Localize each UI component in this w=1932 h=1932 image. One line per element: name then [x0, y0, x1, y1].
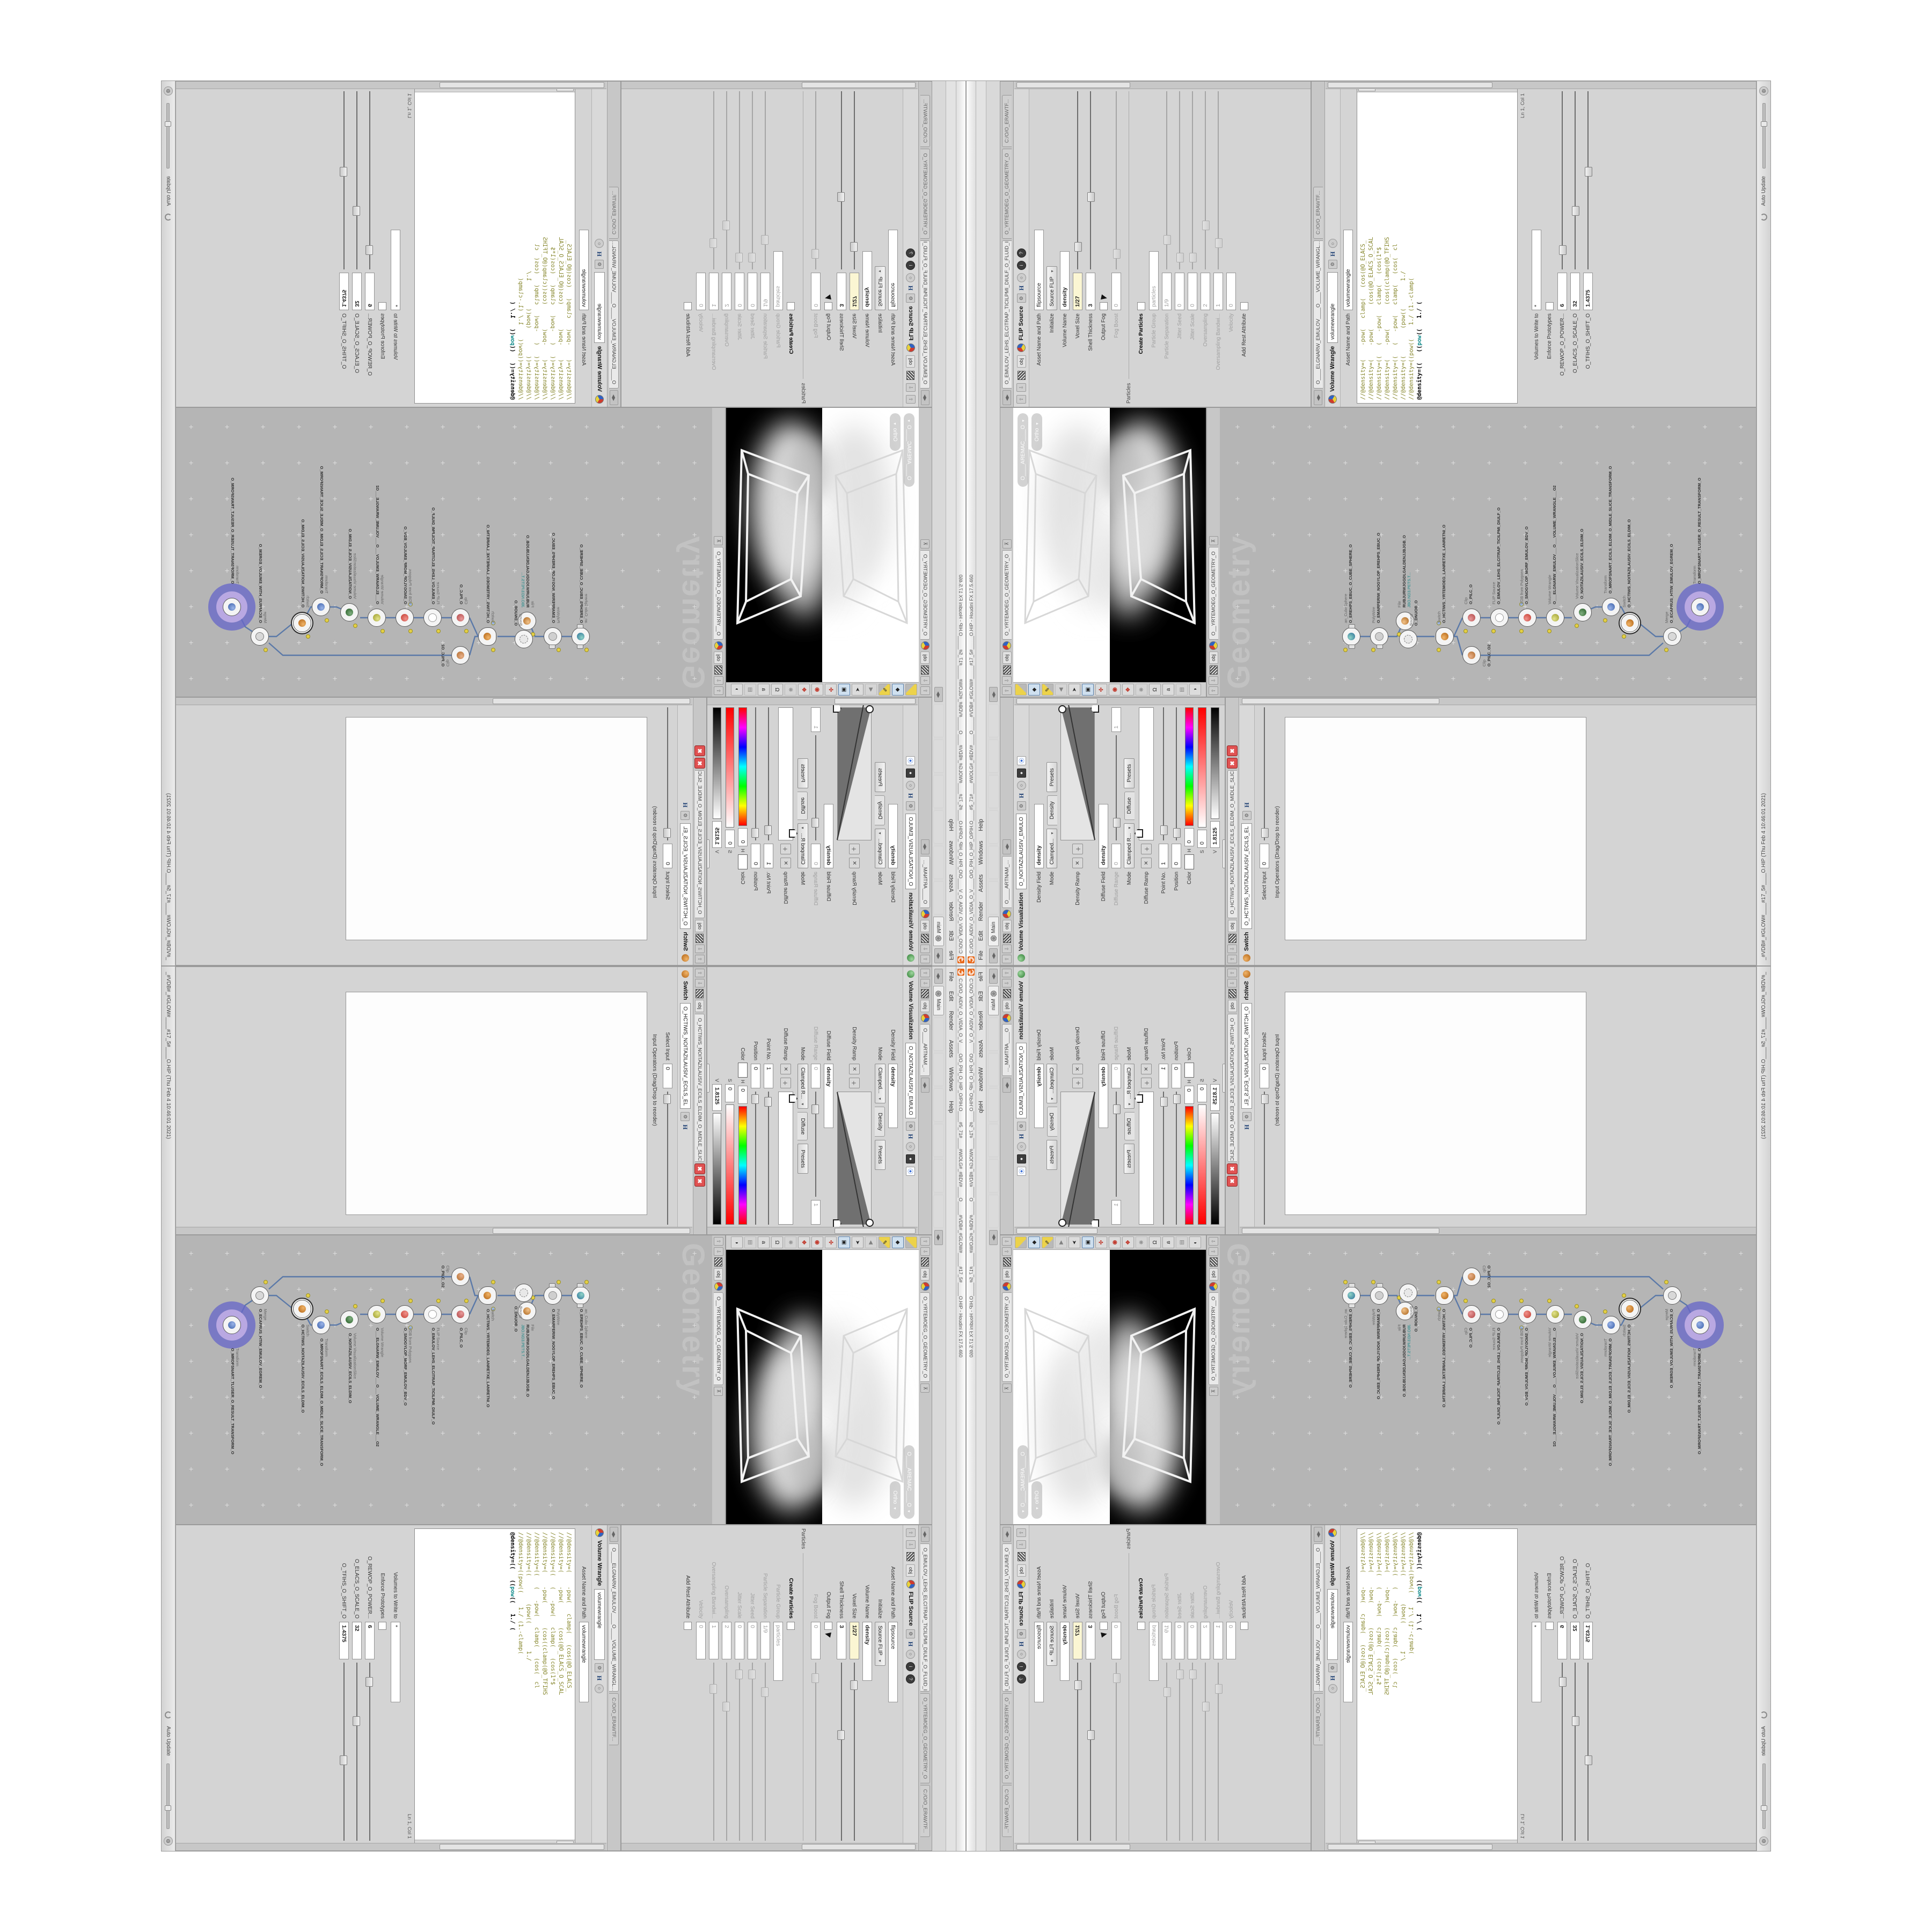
density-field-value[interactable]: density — [888, 1064, 898, 1128]
volumes-to-write-value[interactable]: * — [391, 1622, 400, 1702]
fog-boost-slider[interactable] — [811, 1663, 821, 1841]
update-mode-icon[interactable] — [165, 1711, 172, 1718]
measure-icon[interactable]: a — [758, 684, 770, 696]
select-input-value[interactable]: 0 — [663, 844, 672, 868]
geometry-pane-tab[interactable]: O_YRTEMOEG_O_GEOMETRY_O — [920, 149, 930, 239]
breadcrumb-obj[interactable]: obj — [921, 1268, 930, 1280]
diffuse-range-slider[interactable] — [811, 735, 821, 840]
pose-tool-icon[interactable]: ✣ — [1095, 684, 1107, 696]
saturation-slider[interactable] — [1198, 1104, 1206, 1225]
pin-icon[interactable]: ⊼ — [921, 539, 930, 548]
node-switch-visualization[interactable]: SwitchO_HCTIWS_NOITAZILAUSIV_ECILS_ELDIM… — [293, 1300, 311, 1318]
gear-icon[interactable]: ⚙ — [906, 1629, 916, 1638]
pane-up-arrow-icon[interactable]: ⇧ — [920, 686, 930, 695]
create-particles-checkbox[interactable] — [787, 1622, 795, 1630]
ramp-position-marker[interactable] — [789, 1094, 797, 1103]
magnifier-icon[interactable]: ○ — [1017, 1142, 1026, 1151]
node-transform-slice[interactable]: TransformO_MROFSNART_ECILS_ELDIM_O_MIDLE… — [1602, 1316, 1620, 1334]
viewport-canvas[interactable]: O____AREMAC____O Ortho — [1013, 408, 1206, 682]
select-input-slider[interactable] — [1260, 1092, 1269, 1225]
oversampling-value[interactable]: 2 — [722, 273, 731, 310]
ramp-add-button[interactable]: ＋ — [780, 1078, 791, 1088]
error-icon[interactable]: ✖ — [1227, 758, 1238, 769]
scale-param-slider[interactable] — [1570, 91, 1580, 269]
network-pane-tab[interactable]: O__YRTEMOEG_O_GEOMETRY_O — [1209, 547, 1218, 640]
breadcrumb-obj[interactable]: obj — [906, 1564, 916, 1577]
pane-up-arrow-icon[interactable]: ⇧ — [1002, 1237, 1012, 1246]
flip-node-name-field[interactable]: flipsource — [1034, 1622, 1044, 1702]
particle-separation-slider[interactable] — [760, 91, 770, 269]
pane-down-arrow-icon[interactable]: ⇩ — [1016, 383, 1026, 392]
val-value[interactable]: 1.8125 — [712, 821, 722, 848]
pin-icon[interactable]: ⊼ — [921, 1384, 930, 1393]
node-volume-visualization-slice[interactable]: Volume VisualizationSliceO_NOITAZILAUSIV… — [1574, 603, 1592, 621]
density-field-value[interactable]: density — [888, 804, 898, 868]
network-canvas[interactable]: ++++++++++++++++++++++++++++++++++++++++… — [176, 1235, 712, 1524]
value-slider[interactable] — [1211, 1113, 1219, 1225]
position-value[interactable]: 0 — [751, 844, 760, 868]
shell-thickness-slider[interactable] — [837, 91, 846, 269]
node-merge[interactable]: MergeO_ECAFRUS_HTIW_EMULOV_EGREM_O — [251, 1286, 269, 1305]
pane-up-arrow-icon[interactable]: ⇧ — [1209, 686, 1218, 695]
viz-pane-tab[interactable]: O____ARTNAM_... — [920, 856, 930, 909]
node-volume-visualization-slice[interactable]: Volume VisualizationSliceO_NOITAZILAUSIV… — [340, 1311, 358, 1329]
oversampling-slider[interactable] — [1201, 91, 1210, 269]
pin-icon[interactable]: ⊼ — [714, 1387, 723, 1396]
velocity-value[interactable]: 0 — [1226, 273, 1236, 310]
scale-param-slider[interactable] — [352, 1663, 362, 1841]
error-icon[interactable]: ✖ — [1227, 745, 1238, 756]
viewport-pane-tab[interactable]: O_YRTEMOEG_O_GEOMETRY_O — [920, 550, 930, 640]
flip-scrollbar[interactable] — [621, 1843, 918, 1850]
transform-tool-icon[interactable]: ✥ — [1122, 684, 1134, 696]
camera-pill[interactable]: O____AREMAC____O — [1018, 1445, 1028, 1519]
info-icon[interactable]: i — [1017, 261, 1026, 270]
gear-icon[interactable]: ⚙ — [1328, 1663, 1337, 1672]
geometry-pane-tab[interactable]: O_YRTEMOEG_O_GEOMETRY_O — [1002, 1693, 1012, 1783]
point-no-value[interactable]: 1 — [1159, 844, 1168, 868]
sculpt-tool-icon[interactable]: ◉ — [1109, 684, 1121, 696]
menu-help[interactable]: Help — [948, 819, 954, 831]
particle-group-value[interactable]: particles — [773, 251, 783, 310]
diffuse-range-max[interactable]: 1 — [1111, 1200, 1121, 1225]
jitter-scale-value[interactable]: 0 — [1188, 1622, 1197, 1659]
oversampling-bandwidth-value[interactable]: 1 — [709, 273, 719, 310]
node-clip-b[interactable]: ClipO_PILC_O2 — [451, 1268, 470, 1286]
error-icon[interactable]: ✖ — [694, 1176, 705, 1187]
ramp-point-marker[interactable] — [1058, 705, 1066, 713]
shell-thickness-slider[interactable] — [837, 1663, 846, 1841]
shelf-scroll-left-icon[interactable]: ◀▶ — [934, 948, 943, 963]
menu-help[interactable]: Help — [978, 1101, 984, 1113]
select-tool-icon[interactable]: ◆ — [892, 684, 904, 696]
select-input-value[interactable]: 0 — [1260, 844, 1269, 868]
shelf-tab-main[interactable]: Main — [933, 917, 944, 946]
ramp-delete-button[interactable]: ✕ — [849, 858, 860, 868]
pin-icon[interactable]: ⊼ — [714, 536, 723, 545]
pane-down-arrow-icon[interactable]: ⇩ — [1002, 945, 1012, 953]
vex-code-editor[interactable]: //@density=( -pow( clamp( (cos(@O_ELACS_… — [414, 85, 575, 404]
magnifier-icon[interactable]: ○ — [595, 1684, 604, 1693]
node-switch-visualization[interactable]: SwitchO_HCTIWS_NOITAZILAUSIV_ECILS_ELDIM… — [293, 614, 311, 632]
density-ramp-widget[interactable] — [1060, 707, 1095, 840]
select-input-slider[interactable] — [663, 1092, 672, 1225]
pane-down-arrow-icon[interactable]: ⇩ — [1227, 945, 1237, 953]
menu-assets[interactable]: Assets — [948, 874, 954, 892]
back-arrow-icon[interactable]: ◀ — [1055, 1236, 1067, 1248]
color-swatch[interactable] — [738, 1063, 748, 1078]
scale-param-slider[interactable] — [1570, 1663, 1580, 1841]
houdini-help-icon[interactable]: H — [1243, 802, 1251, 807]
initialize-dropdown[interactable]: Source FLIP — [1046, 266, 1057, 310]
add-rest-attribute-checkbox[interactable] — [1240, 302, 1248, 310]
breadcrumb-obj[interactable]: obj — [1228, 1000, 1237, 1012]
jitter-scale-slider[interactable] — [1188, 1663, 1197, 1841]
hue-slider[interactable] — [738, 1106, 747, 1225]
oversampling-bandwidth-value[interactable]: 1 — [1213, 1622, 1223, 1659]
menu-windows[interactable]: Windows — [948, 1067, 954, 1092]
wrangle-scrollbar[interactable] — [176, 82, 606, 89]
update-mode-icon[interactable] — [165, 214, 172, 221]
create-particles-checkbox[interactable] — [1137, 302, 1145, 310]
particle-separation-value[interactable]: 1/9 — [1162, 1622, 1172, 1659]
val-value[interactable]: 1.8125 — [1210, 821, 1220, 848]
voxel-size-value[interactable]: 1/27 — [1073, 273, 1082, 310]
book-icon[interactable]: ▤ — [1176, 684, 1188, 696]
saturation-slider[interactable] — [726, 1104, 734, 1225]
auto-update-label[interactable]: Auto Update — [1761, 1726, 1767, 1756]
node-volume-visualization-slice[interactable]: Volume VisualizationSliceO_NOITAZILAUSIV… — [340, 603, 358, 621]
gear-icon[interactable]: ⚙ — [1242, 1112, 1252, 1121]
node-cube-sphere[interactable]: an_CubeSphereO_EREHPS_EBUC_O_CUBE_SPHERE… — [1342, 627, 1360, 646]
gear-icon[interactable]: ⚙ — [1242, 811, 1252, 820]
pane-up-arrow-icon[interactable]: ⇧ — [714, 686, 723, 695]
particle-separation-value[interactable]: 1/9 — [760, 273, 770, 310]
wrangle-pane-tab[interactable]: O____ELGNARW_EMULOV____O____VOLUME_WRANG… — [609, 1543, 619, 1692]
node-transform-slice[interactable]: TransformO_MROFSNART_ECILS_ELDIM_O_MIDLE… — [312, 1316, 330, 1334]
measure-icon[interactable]: a — [1162, 684, 1174, 696]
auto-update-label[interactable]: Auto Update — [165, 176, 171, 206]
value-slider[interactable] — [1211, 707, 1219, 819]
diffuse-presets-button[interactable]: Presets — [797, 1144, 808, 1174]
diffuse-range-slider[interactable] — [1111, 1092, 1121, 1197]
volumes-to-write-value[interactable]: * — [391, 230, 400, 310]
jitter-scale-value[interactable]: 0 — [735, 1622, 744, 1659]
shelf-scroll-left-icon[interactable]: ◀▶ — [934, 969, 943, 984]
viewport-canvas[interactable]: O____AREMAC____O Ortho — [726, 1250, 919, 1524]
particle-group-value[interactable]: particles — [773, 1622, 783, 1681]
measure-icon[interactable]: a — [1162, 1236, 1174, 1248]
help-icon[interactable]: ? — [1017, 248, 1026, 258]
shade-sphere-icon[interactable]: ◑ — [1189, 684, 1201, 696]
scale-param-value[interactable]: 32 — [352, 273, 362, 310]
switch-scrollbar[interactable] — [1240, 698, 1756, 705]
houdini-help-icon[interactable]: H — [596, 1675, 604, 1680]
pane-down-arrow-icon[interactable]: ⇩ — [714, 676, 723, 685]
scale-param-value[interactable]: 32 — [352, 1622, 362, 1659]
error-icon[interactable]: ✖ — [694, 758, 705, 769]
ortho-pill[interactable]: Ortho — [890, 413, 901, 451]
network-pane-tab[interactable]: O__YRTEMOEG_O_GEOMETRY_O — [714, 1292, 723, 1385]
gear-icon[interactable]: ⚙ — [1328, 260, 1337, 269]
magnifier-icon[interactable]: ○ — [906, 781, 916, 790]
point-no-slider[interactable] — [764, 707, 773, 840]
diffuse-range-max[interactable]: 1 — [811, 1200, 821, 1225]
breadcrumb-obj[interactable]: obj — [1002, 1268, 1012, 1280]
density-ramp-widget[interactable] — [1060, 1092, 1095, 1225]
hue-value[interactable]: 0 — [1184, 829, 1194, 847]
vex-code-editor[interactable]: //@density=( -pow( clamp( (cos(@O_ELACS_… — [1357, 1528, 1518, 1847]
pin-icon[interactable]: ⊼ — [1209, 536, 1218, 545]
help-icon[interactable]: ? — [906, 248, 916, 258]
pane-down-arrow-icon[interactable]: ⇩ — [920, 945, 930, 953]
shift-param-value[interactable]: 1.4375 — [339, 1622, 349, 1659]
oversampling-bandwidth-value[interactable]: 1 — [1213, 273, 1223, 310]
pane-down-arrow-icon[interactable]: ⇩ — [1209, 676, 1218, 685]
volume-name-value[interactable]: density — [862, 1622, 872, 1681]
menu-windows[interactable]: Windows — [948, 841, 954, 865]
val-value[interactable]: 1.8125 — [1210, 1084, 1220, 1111]
node-transform-slice[interactable]: TransformO_MROFSNART_ECILS_ELDIM_O_MIDLE… — [312, 598, 330, 616]
node-switch-geometry[interactable]: SwitchO_HCTIWS_YRTEMOEG_LANRETXE_LANRETN… — [478, 627, 496, 646]
density-presets-button[interactable]: Presets — [1046, 1140, 1057, 1170]
snap-magnet-icon[interactable]: Ω — [1149, 1236, 1161, 1248]
node-clip-a[interactable]: ClipO_PILC_O — [451, 609, 470, 627]
path-tab[interactable]: C:/O/O_ERAWTF... — [609, 1693, 619, 1745]
move-tool-icon[interactable]: ✎ — [1042, 1236, 1053, 1248]
houdini-help-icon[interactable]: H — [1243, 1124, 1251, 1129]
pane-up-arrow-icon[interactable]: ⇧ — [920, 1237, 930, 1246]
menu-assets[interactable]: Assets — [948, 1040, 954, 1058]
breadcrumb-obj[interactable]: obj — [906, 355, 916, 368]
power-param-slider[interactable] — [365, 1663, 375, 1841]
menu-edit[interactable]: Edit — [948, 931, 954, 941]
switch-pane-tab[interactable]: O_HCTIWS_NOITAZILAUSIV_ECILS_ELDIM_O_MID… — [695, 770, 705, 918]
shift-param-slider[interactable] — [339, 91, 349, 269]
diffuse-folder-tab[interactable]: Diffuse — [798, 1112, 808, 1140]
camera-icon[interactable]: ● — [1017, 1154, 1026, 1163]
viewport-pane-tab[interactable]: O_YRTEMOEG_O_GEOMETRY_O — [1002, 550, 1012, 640]
diffuse-range-min[interactable]: 0 — [1111, 1064, 1121, 1088]
oversampling-slider[interactable] — [722, 1663, 731, 1841]
ramp-delete-button[interactable]: ✕ — [1072, 1064, 1083, 1074]
pane-down-arrow-icon[interactable]: ⇩ — [920, 676, 930, 685]
select-tool-icon[interactable]: ◆ — [1028, 1236, 1040, 1248]
wrangle-node-name-field[interactable]: volumewrangle — [594, 272, 605, 343]
book-icon[interactable]: ▤ — [744, 1236, 756, 1248]
fog-boost-value[interactable]: 0 — [1111, 273, 1121, 310]
pose-tool-icon[interactable]: ✣ — [825, 1236, 837, 1248]
camera-icon[interactable]: ● — [1017, 769, 1026, 778]
viewport-canvas[interactable]: O____AREMAC____O Ortho — [726, 408, 919, 682]
power-param-value[interactable]: 6 — [1557, 273, 1567, 310]
interpolation-dropdown[interactable]: Linear — [707, 1064, 709, 1093]
enforce-prototypes-checkbox[interactable] — [379, 1622, 387, 1630]
breadcrumb-obj[interactable]: obj — [1209, 1268, 1218, 1280]
output-fog-checkbox[interactable] — [825, 302, 833, 310]
path-tab[interactable]: C:/O/O_ERAWTF... — [1313, 187, 1323, 239]
node-merge[interactable]: MergeO_ECAFRUS_HTIW_EMULOV_EGREM_O — [1663, 627, 1681, 646]
viz-node-name-field[interactable]: O_NOITAZILAUSIV_EMULO — [1016, 1043, 1027, 1118]
camera-lens-icon[interactable]: ▣ — [1082, 1236, 1094, 1248]
enforce-prototypes-checkbox[interactable] — [1546, 1622, 1554, 1630]
initialize-dropdown[interactable]: Source FLIP — [1046, 1622, 1057, 1666]
flip-pane-tab[interactable]: O_EMULOV_LEHS_ELCITRAP_TICILPMI_DIULF_O_… — [1002, 1543, 1012, 1692]
viz-node-name-field[interactable]: O_NOITAZILAUSIV_EMULO — [1016, 814, 1027, 889]
viz-scrollbar[interactable] — [1014, 698, 1225, 705]
wrangle-name-value[interactable]: volumewrangle — [579, 230, 589, 310]
input-operators-list[interactable] — [1285, 992, 1586, 1215]
ramp-add-button[interactable]: ＋ — [1141, 844, 1152, 854]
diffuse-folder-tab[interactable]: Diffuse — [1124, 792, 1135, 820]
flip-scrollbar[interactable] — [1014, 82, 1311, 89]
pane-down-arrow-icon[interactable]: ⇩ — [695, 979, 705, 987]
point-no-value[interactable]: 1 — [1159, 1064, 1168, 1088]
density-mode-dropdown[interactable]: Clamped... — [875, 829, 885, 868]
density-presets-button[interactable]: Presets — [1046, 762, 1057, 792]
magnifier-icon[interactable]: ○ — [1017, 273, 1026, 282]
pin-icon[interactable]: ⊼ — [1002, 539, 1012, 548]
viz-pane-tab[interactable]: O____ARTNAM_... — [920, 1024, 930, 1077]
hue-slider[interactable] — [738, 707, 747, 826]
density-mode-dropdown[interactable]: Clamped... — [875, 1064, 885, 1103]
shell-thickness-slider[interactable] — [1086, 1663, 1095, 1841]
wrangle-node-name-field[interactable]: volumewrangle — [1327, 272, 1338, 343]
val-value[interactable]: 1.8125 — [712, 1084, 722, 1111]
node-switch-visualization[interactable]: SwitchO_HCTIWS_NOITAZILAUSIV_ECILS_ELDIM… — [1621, 614, 1639, 632]
density-ramp-widget[interactable] — [837, 1092, 872, 1225]
node-cube-sphere[interactable]: an_CubeSphereO_EREHPS_EBUC_O_CUBE_SPHERE… — [572, 627, 590, 646]
viz-node-name-field[interactable]: O_NOITAZILAUSIV_EMULO — [905, 1043, 916, 1118]
diffuse-range-slider[interactable] — [811, 1092, 821, 1197]
scale-param-slider[interactable] — [352, 91, 362, 269]
sculpt-tool-icon[interactable]: ◉ — [811, 1236, 823, 1248]
node-volume-visualization-slice[interactable]: Volume VisualizationSliceO_NOITAZILAUSIV… — [1574, 1311, 1592, 1329]
info-icon[interactable]: i — [906, 1662, 916, 1671]
flip-scrollbar[interactable] — [621, 82, 918, 89]
ramp-point-marker[interactable] — [1058, 1219, 1066, 1227]
shift-param-value[interactable]: 1.4375 — [339, 273, 349, 310]
diffuse-folder-tab[interactable]: Diffuse — [1124, 1112, 1135, 1140]
snap-magnet-icon[interactable]: Ω — [1149, 684, 1161, 696]
update-mode-icon[interactable] — [1760, 214, 1767, 221]
transform-tool-icon[interactable]: ✥ — [798, 684, 810, 696]
shelf-tab-main[interactable]: Main — [988, 917, 999, 946]
velocity-value[interactable]: 0 — [696, 273, 706, 310]
hue-value[interactable]: 0 — [1184, 1086, 1194, 1104]
power-param-value[interactable]: 6 — [365, 273, 375, 310]
node-result-transform-selected[interactable]: TransformO_MROFSNART_TLUSER_O_RESULT_TRA… — [223, 598, 241, 616]
network-canvas[interactable]: ++++++++++++++++++++++++++++++++++++++++… — [176, 408, 712, 697]
shade-sphere-icon[interactable]: ◑ — [731, 1236, 743, 1248]
select-input-value[interactable]: 0 — [663, 1064, 672, 1088]
diffuse-presets-button[interactable]: Presets — [797, 758, 808, 788]
gear-icon[interactable]: ⚙ — [1017, 1122, 1026, 1131]
breadcrumb-obj[interactable]: obj — [1017, 1564, 1026, 1577]
breadcrumb-obj[interactable]: obj — [1002, 920, 1012, 932]
node-bound[interactable]: BoundO_DNUOB_O — [1399, 630, 1417, 648]
node-switch-geometry[interactable]: SwitchO_HCTIWS_YRTEMOEG_LANRETXE_LANRETN… — [478, 1286, 496, 1305]
switch-pane-tab[interactable]: O_HCTIWS_NOITAZILAUSIV_ECILS_ELDIM_O_MID… — [695, 1014, 705, 1162]
move-tool-icon[interactable]: ✎ — [879, 684, 890, 696]
node-switch-geometry[interactable]: SwitchO_HCTIWS_YRTEMOEG_LANRETXE_LANRETN… — [1436, 1286, 1454, 1305]
node-flip-source[interactable]: FLIP SourceO_EMULOV_LEHS_ELCITRAP_TICILP… — [1490, 1305, 1509, 1323]
oversampling-bandwidth-slider[interactable] — [1213, 1663, 1223, 1841]
pane-down-arrow-icon[interactable]: ⇩ — [1002, 676, 1012, 685]
menu-windows[interactable]: Windows — [978, 1067, 984, 1092]
magnifier-icon[interactable]: ○ — [906, 1142, 916, 1151]
select-tool-icon[interactable]: ◆ — [892, 1236, 904, 1248]
link-target-icon[interactable] — [906, 1167, 916, 1176]
pane-down-arrow-icon[interactable]: ⇩ — [920, 979, 930, 987]
vex-code-editor[interactable]: //@density=( -pow( clamp( (cos(@O_ELACS_… — [1357, 85, 1518, 404]
gear-icon[interactable]: ⚙ — [595, 260, 604, 269]
camera-pill[interactable]: O____AREMAC____O — [904, 413, 914, 487]
initialize-dropdown[interactable]: Source FLIP — [875, 1622, 885, 1666]
node-vdb-from-polygons[interactable]: VDB from PolygonsO_SNOGYLOP_MORF_EMULOV_… — [1518, 609, 1536, 627]
power-param-value[interactable]: 6 — [365, 1622, 375, 1659]
gear-icon[interactable]: ⚙ — [681, 1112, 690, 1121]
diffuse-presets-button[interactable]: Presets — [1124, 1144, 1135, 1174]
position-slider[interactable] — [1172, 1092, 1181, 1225]
diffuse-field-value[interactable]: density — [1099, 1064, 1108, 1128]
wrangle-pane-tab[interactable]: O____ELGNARW_EMULOV____O____VOLUME_WRANG… — [609, 240, 619, 389]
density-presets-button[interactable]: Presets — [875, 762, 885, 792]
node-result-transform-selected[interactable]: TransformO_MROFSNART_TLUSER_O_RESULT_TRA… — [1691, 598, 1709, 616]
pane-down-arrow-icon[interactable]: ⇩ — [1002, 1247, 1012, 1256]
breadcrumb-obj[interactable]: obj — [1002, 1000, 1012, 1012]
jitter-seed-slider[interactable] — [748, 1663, 757, 1841]
book-icon[interactable]: ▤ — [1176, 1236, 1188, 1248]
ramp-point-marker[interactable] — [866, 705, 874, 713]
snowflake-icon[interactable]: ❋ — [1136, 1236, 1147, 1248]
density-field-value[interactable]: density — [1034, 1064, 1044, 1128]
node-clip-b[interactable]: ClipO_PILC_O2 — [1462, 646, 1481, 664]
switch-scrollbar[interactable] — [1240, 1227, 1756, 1234]
volumes-to-write-value[interactable]: * — [1532, 1622, 1541, 1702]
gear-icon[interactable]: ⚙ — [906, 1122, 916, 1131]
ortho-pill[interactable]: Ortho — [890, 1481, 901, 1519]
houdini-help-icon[interactable]: H — [1329, 251, 1337, 256]
shade-sphere-icon[interactable]: ◑ — [1189, 1236, 1201, 1248]
node-clip-a[interactable]: ClipO_PILC_O — [451, 1305, 470, 1323]
magnifier-icon[interactable]: ○ — [1328, 239, 1337, 248]
saturation-slider[interactable] — [1198, 707, 1206, 828]
tab-scroll-icon[interactable]: ◀▶ — [610, 1527, 618, 1542]
diffuse-ramp-widget[interactable] — [778, 707, 793, 840]
shelf-scroll-left-icon[interactable]: ◀▶ — [989, 948, 998, 963]
add-rest-attribute-checkbox[interactable] — [684, 1622, 692, 1630]
gear-icon[interactable]: ⚙ — [1017, 801, 1026, 810]
tab-scroll-icon[interactable]: ◀▶ — [1314, 1527, 1322, 1542]
power-param-slider[interactable] — [1557, 1663, 1567, 1841]
snap-magnet-icon[interactable]: Ω — [771, 1236, 783, 1248]
auto-update-label[interactable]: Auto Update — [1761, 176, 1767, 206]
node-flip-source[interactable]: FLIP SourceO_EMULOV_LEHS_ELCITRAP_TICILP… — [1490, 609, 1509, 627]
flip-pane-tab[interactable]: O_EMULOV_LEHS_ELCITRAP_TICILPMI_DIULF_O_… — [920, 1543, 930, 1692]
ramp-delete-button[interactable]: ✕ — [1141, 858, 1152, 868]
power-param-slider[interactable] — [365, 91, 375, 269]
volume-name-value[interactable]: density — [1060, 1622, 1070, 1681]
switch-scrollbar[interactable] — [176, 698, 692, 705]
density-field-value[interactable]: density — [1034, 804, 1044, 868]
houdini-help-icon[interactable]: H — [682, 1124, 690, 1129]
switch-node-name-field[interactable]: O_HCTIWS_NOITAZILAUSIV_ECILS_EL — [1241, 1003, 1252, 1109]
magnifier-icon[interactable]: ○ — [595, 239, 604, 248]
particle-separation-value[interactable]: 1/9 — [760, 1622, 770, 1659]
sat-value[interactable]: 0 — [1197, 830, 1207, 848]
magnifier-icon[interactable]: ○ — [906, 273, 916, 282]
